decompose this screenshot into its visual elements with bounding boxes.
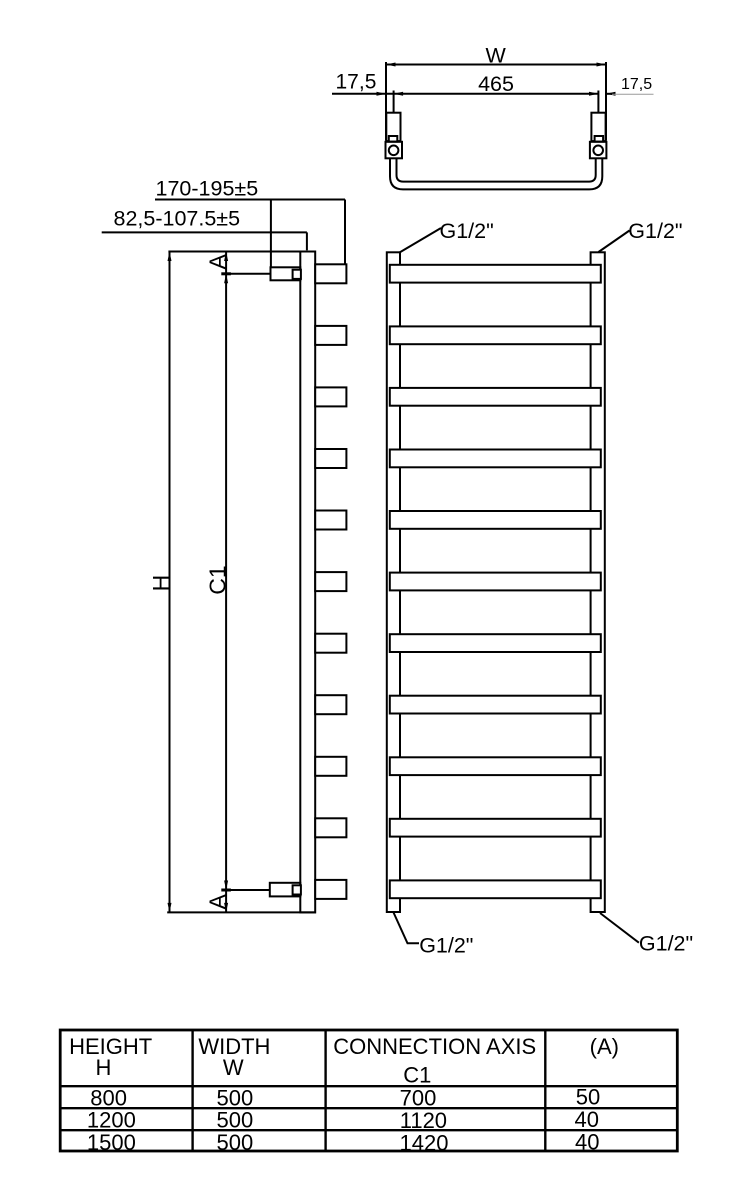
svg-text:1420: 1420	[400, 1130, 449, 1155]
svg-text:465: 465	[478, 72, 514, 96]
svg-text:CONNECTION AXIS: CONNECTION AXIS	[333, 1034, 536, 1059]
svg-text:1200: 1200	[87, 1108, 136, 1133]
svg-text:1500: 1500	[87, 1130, 136, 1155]
svg-text:17,5: 17,5	[621, 76, 652, 93]
svg-text:(A): (A)	[590, 1034, 619, 1059]
svg-text:500: 500	[217, 1108, 254, 1133]
svg-text:40: 40	[575, 1130, 599, 1155]
svg-text:A: A	[204, 893, 230, 909]
svg-text:W: W	[486, 44, 507, 68]
svg-text:C1: C1	[403, 1063, 431, 1088]
svg-text:H: H	[148, 575, 174, 592]
svg-text:40: 40	[574, 1107, 598, 1132]
svg-text:W: W	[223, 1055, 244, 1080]
svg-text:500: 500	[217, 1085, 254, 1110]
svg-text:700: 700	[400, 1086, 437, 1111]
svg-text:G1/2": G1/2"	[419, 933, 473, 957]
svg-text:G1/2": G1/2"	[440, 219, 494, 243]
svg-text:C1: C1	[205, 565, 231, 594]
svg-text:H: H	[95, 1055, 111, 1080]
svg-text:50: 50	[576, 1085, 600, 1110]
svg-text:82,5-107.5±5: 82,5-107.5±5	[114, 207, 241, 231]
svg-text:A: A	[204, 253, 230, 269]
svg-text:170-195±5: 170-195±5	[156, 177, 259, 201]
svg-text:G1/2": G1/2"	[628, 219, 682, 243]
svg-text:17,5: 17,5	[336, 71, 377, 94]
svg-text:G1/2": G1/2"	[639, 932, 693, 956]
svg-text:800: 800	[90, 1085, 127, 1110]
svg-text:500: 500	[217, 1130, 254, 1155]
